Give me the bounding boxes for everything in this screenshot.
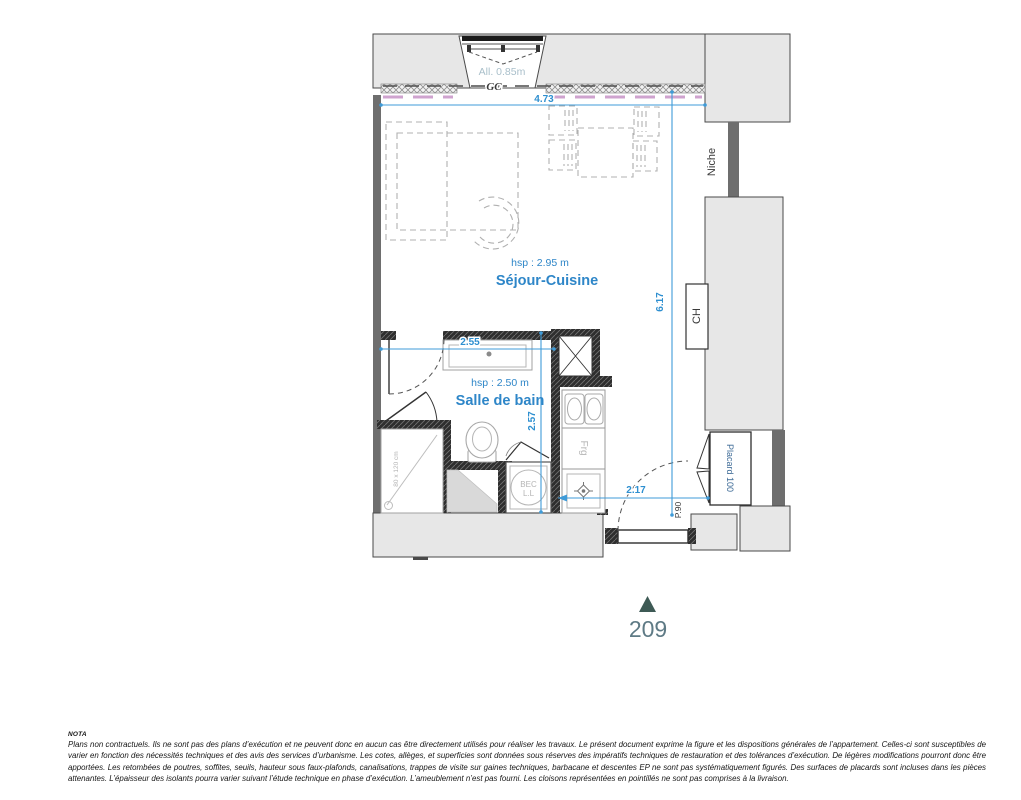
- floor-plan-drawing: 4.73 6.17 2.55 2.57 2.17 All. 0.85m GC h…: [0, 0, 1021, 726]
- window-glazing-bar: [462, 36, 543, 41]
- sink-symbol-center: [582, 489, 586, 493]
- entry-door-swing: [618, 461, 688, 531]
- allege-label: All. 0.85m: [479, 66, 526, 78]
- washer-label-line2: L.L: [523, 489, 535, 498]
- chair-4: [633, 141, 657, 171]
- niche-back-wall: [728, 122, 739, 197]
- washer-label-line1: BEC: [520, 480, 537, 489]
- unit-number: 209: [629, 616, 667, 642]
- top-right-wall-block: [705, 34, 790, 122]
- window-mullion-right: [536, 45, 540, 52]
- bathroom-door-swing: [389, 339, 444, 394]
- niche-label: Niche: [706, 148, 718, 176]
- right-wall-strip: [772, 430, 785, 512]
- dim-bath-height-label: 2.57: [527, 411, 538, 431]
- nota-title: NOTA: [68, 731, 986, 738]
- bath-name-label: Salle de bain: [456, 393, 545, 409]
- bottom-wall-band: [373, 513, 603, 557]
- chair-2: [549, 140, 576, 170]
- armchair-inner: [480, 205, 513, 243]
- closet-label: Placard 100: [725, 444, 735, 492]
- chair-1: [549, 106, 577, 135]
- window-mullion-left: [467, 45, 471, 52]
- fridge-label: Frg: [578, 441, 589, 456]
- window-bay: [459, 36, 546, 88]
- washbasin-drain: [487, 352, 492, 357]
- kitchen-top-wall: [551, 376, 612, 387]
- nota-body: Plans non contractuels. Ils ne sont pas …: [68, 739, 986, 784]
- north-triangle-icon: [639, 596, 656, 612]
- entry-door-jamb-right: [688, 528, 696, 544]
- duct-right-wall: [592, 329, 600, 380]
- furniture: [386, 106, 659, 249]
- threshold-mark: [413, 557, 428, 560]
- boiler-label: CH: [691, 308, 703, 324]
- gc-label: GC: [486, 81, 502, 93]
- shower-size-label: 80 x 120 cm: [393, 451, 400, 486]
- bath-top-wall-left: [381, 331, 396, 340]
- unit-marker: 209: [629, 596, 667, 642]
- entry-door-leaf: [618, 530, 688, 543]
- dim-top-width-label: 4.73: [534, 94, 554, 105]
- ventilation-duct: [559, 336, 592, 376]
- window-mullion-center: [501, 45, 505, 52]
- bath-top-wall: [443, 331, 551, 340]
- bath-hsp-label: hsp : 2.50 m: [471, 377, 529, 389]
- bed-outline-b: [397, 133, 518, 230]
- shower-door-leaf: [383, 392, 426, 423]
- dim-entry-width-label: 2.17: [626, 485, 646, 496]
- technical-shaft: [705, 197, 783, 430]
- entry-door-jamb-left: [605, 528, 618, 544]
- entry-corner-block-right: [740, 506, 790, 551]
- sejour-name-label: Séjour-Cuisine: [496, 273, 598, 289]
- nota-block: NOTA Plans non contractuels. Ils ne sont…: [68, 731, 986, 784]
- entry-door-label: P.90: [673, 502, 683, 519]
- dim-bath-width-label: 2.55: [460, 337, 480, 348]
- shower-door-swing: [426, 392, 437, 422]
- closet-folding-door-top: [697, 434, 709, 469]
- chair-3: [634, 107, 659, 136]
- dim-room-height-label: 6.17: [655, 292, 666, 312]
- sejour-hsp-label: hsp : 2.95 m: [511, 257, 569, 269]
- wc-partition: [447, 470, 497, 512]
- floor-plan-page: 4.73 6.17 2.55 2.57 2.17 All. 0.85m GC h…: [0, 0, 1021, 800]
- wc-door-leaf: [506, 442, 549, 460]
- left-exterior-wall: [373, 95, 381, 515]
- bed-outline-a: [386, 122, 447, 240]
- entry-corner-block-left: [691, 514, 737, 550]
- dining-table: [578, 128, 633, 177]
- washer-left-wall: [498, 470, 506, 513]
